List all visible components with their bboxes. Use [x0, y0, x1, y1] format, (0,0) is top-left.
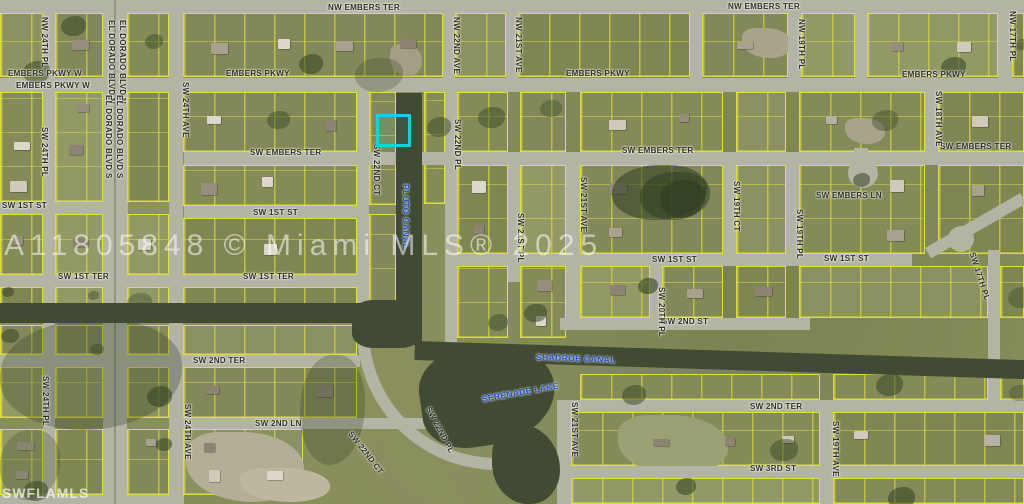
tree-canopy	[1009, 385, 1024, 402]
house	[984, 435, 1000, 446]
house	[267, 471, 283, 481]
house	[609, 120, 625, 130]
house	[891, 42, 902, 51]
street-label-embers-pkwy-w: EMBERS PKWY W	[8, 69, 82, 78]
street-label-sw-1st-st: SW 1ST ST	[253, 208, 298, 217]
house	[278, 39, 290, 50]
house	[10, 181, 26, 192]
street-label-el-dorado-blvd-n: EL DORADO BLVD N	[107, 20, 116, 104]
house	[325, 120, 336, 131]
house	[972, 185, 984, 196]
street-label-sw-1st-st: SW 1ST ST	[652, 255, 697, 264]
house	[262, 177, 274, 187]
street-label-nw-24th-pl: NW 24TH PL	[40, 17, 49, 68]
street-label-sw-18th-ave: SW 18TH AVE	[934, 91, 943, 147]
house	[204, 443, 215, 452]
street-label-embers-pkwy: EMBERS PKWY	[226, 69, 290, 78]
house	[201, 183, 217, 195]
cul-de-sac-stub	[854, 148, 868, 168]
street-label-nw-19th-pl: NW 19TH PL	[797, 19, 806, 70]
house	[887, 230, 904, 241]
house	[679, 114, 690, 122]
parcel-block	[183, 325, 357, 355]
house	[537, 280, 552, 291]
canal-junction	[352, 300, 422, 348]
street-label-sw-embers-ln: SW EMBERS LN	[816, 191, 882, 200]
street-label-sw-embers-ter: SW EMBERS TER	[940, 142, 1011, 151]
street-label-sw-21st-ave: SW 21ST AVE	[579, 177, 588, 232]
street-label-el-dorado-blvd-n: EL DORADO BLVD N	[118, 20, 127, 104]
street-label-sw-19th-ct: SW 19TH CT	[732, 181, 741, 232]
parcel-block	[580, 92, 723, 152]
house	[209, 470, 221, 482]
road-sw-21st-ave-s	[557, 400, 571, 504]
house	[211, 43, 228, 54]
house	[826, 116, 837, 124]
satellite-map: A11805848 © Miami MLS® 2025 SWFLAMLS NW …	[0, 0, 1024, 504]
street-label-sw-embers-ter: SW EMBERS TER	[622, 146, 693, 155]
parcel-block	[867, 13, 998, 77]
street-label-sw-19th-pl: SW 19TH PL	[795, 209, 804, 259]
street-label-sw-1st-ter: SW 1ST TER	[58, 272, 109, 281]
street-label-embers-pkwy-w: EMBERS PKWY W	[16, 81, 90, 90]
house	[610, 285, 625, 295]
street-label-sw-embers-ter: SW EMBERS TER	[250, 148, 321, 157]
house	[77, 104, 88, 111]
parcel-block	[736, 165, 786, 254]
street-label-sw-3rd-st: SW 3RD ST	[750, 464, 796, 473]
tree-canopy	[676, 478, 696, 494]
street-label-el-dorado-blvd-s: EL DORADO BLVD S	[115, 95, 124, 179]
street-label-sw-2nd-st: SW 2ND ST	[662, 317, 708, 326]
road-sw-22nd-ct	[357, 90, 369, 305]
street-label-nw-22nd-ave: NW 22ND AVE	[452, 17, 461, 74]
street-label-sw-20th-pl: SW 20TH PL	[657, 287, 666, 337]
house	[972, 116, 987, 127]
street-label-sw-1st-st: SW 1ST ST	[2, 201, 47, 210]
street-label-sw-24th-ave: SW 24TH AVE	[183, 404, 192, 460]
tree-canopy	[145, 34, 163, 48]
mls-watermark: A11805848 © Miami MLS® 2025	[4, 229, 603, 263]
tree-canopy	[888, 487, 916, 504]
house	[14, 142, 30, 150]
street-label-sw-1st-st: SW 1ST ST	[824, 254, 869, 263]
serenade-lake-south	[492, 425, 560, 504]
tree-canopy	[872, 110, 898, 131]
street-label-sw-2nd-ter: SW 2ND TER	[193, 356, 245, 365]
parcel-block	[799, 266, 988, 318]
street-label-embers-pkwy: EMBERS PKWY	[902, 70, 966, 79]
tree-canopy	[427, 117, 451, 136]
cul-de-sac-right	[948, 226, 974, 252]
house	[725, 438, 736, 446]
street-label-sw-22nd-ct: SW 22ND CT	[372, 144, 381, 195]
house	[146, 439, 156, 447]
parcel-block	[833, 374, 988, 400]
highlighted-parcel	[376, 114, 411, 147]
tree-canopy	[1, 329, 19, 343]
street-label-sw-2nd-ter: SW 2ND TER	[750, 402, 802, 411]
house	[687, 289, 703, 298]
street-label-sw-2nd-ln: SW 2ND LN	[255, 419, 302, 428]
house	[206, 386, 219, 394]
street-label-nw-17th-pl: NW 17TH PL	[1008, 11, 1017, 62]
parcel-block	[455, 13, 506, 77]
street-label-sw-21st-ave: SW 21ST AVE	[570, 402, 579, 457]
tree-canopy	[622, 385, 646, 404]
parcel-block	[127, 92, 169, 202]
tree-canopy	[770, 439, 798, 461]
west-canal	[0, 303, 368, 323]
road-top-unnamed-1	[690, 0, 702, 80]
street-label-sw-24th-pl: SW 24TH PL	[40, 127, 49, 177]
parcel-block	[801, 13, 855, 77]
street-label-el-dorado-blvd-s: EL DORADO BLVD S	[104, 95, 113, 179]
house	[400, 39, 416, 48]
house	[207, 116, 221, 124]
street-label-sw-22nd-pl: SW 22ND PL	[453, 119, 462, 170]
street-label-sw-24th-pl: SW 24TH PL	[41, 376, 50, 426]
parcel-block	[736, 92, 786, 152]
street-label-nw-21st-ave: NW 21ST AVE	[514, 17, 523, 73]
street-label-sw-24th-ave: SW 24TH AVE	[181, 82, 190, 138]
house	[890, 180, 904, 192]
parcel-block	[518, 13, 690, 77]
street-label-embers-pkwy: EMBERS PKWY	[566, 69, 630, 78]
house	[755, 287, 772, 297]
tree-canopy	[853, 173, 870, 187]
tree-canopy	[61, 16, 85, 36]
road-top-unnamed-2	[855, 0, 867, 80]
tree-canopy	[2, 287, 14, 297]
tree-canopy	[540, 100, 561, 117]
parcel-block	[833, 478, 1024, 504]
parcel-block	[424, 92, 445, 204]
road-embers-pkwy	[0, 78, 1024, 92]
street-label-sw-1st-ter: SW 1ST TER	[243, 272, 294, 281]
house	[854, 431, 868, 439]
street-label-sw-22nd-ct: SW 22ND CT	[346, 430, 385, 476]
road-sw-17th-pl	[988, 250, 1000, 410]
street-label-nw-embers-ter: NW EMBERS TER	[328, 3, 400, 12]
street-label-sw-19th-ave: SW 19TH AVE	[831, 421, 840, 477]
tree-canopy	[488, 314, 508, 330]
house	[609, 228, 622, 237]
tree-cluster	[300, 355, 365, 465]
house	[957, 42, 971, 53]
house	[653, 439, 669, 447]
street-label-nw-embers-ter: NW EMBERS TER	[728, 2, 800, 11]
house	[737, 42, 752, 50]
house	[72, 40, 89, 50]
parcel-block	[580, 374, 820, 400]
swfl-mls-watermark: SWFLAMLS	[2, 485, 89, 501]
house	[472, 181, 486, 193]
tree-canopy	[88, 291, 99, 300]
tree-canopy	[524, 304, 546, 322]
house	[69, 145, 83, 155]
house	[336, 41, 353, 51]
